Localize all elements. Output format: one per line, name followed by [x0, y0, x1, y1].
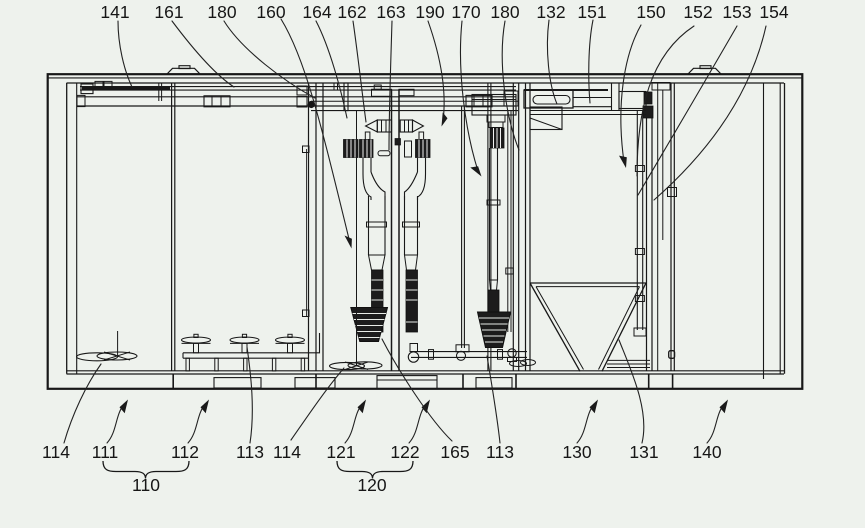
svg-text:150: 150 [636, 2, 665, 22]
svg-text:113: 113 [236, 442, 264, 462]
svg-text:160: 160 [256, 2, 285, 22]
svg-text:165: 165 [440, 442, 469, 462]
svg-text:130: 130 [562, 442, 591, 462]
svg-text:180: 180 [490, 2, 519, 22]
svg-text:152: 152 [683, 2, 712, 22]
svg-text:131: 131 [629, 442, 658, 462]
svg-text:180: 180 [207, 2, 236, 22]
svg-text:112: 112 [171, 442, 199, 462]
svg-text:163: 163 [376, 2, 405, 22]
svg-text:132: 132 [536, 2, 565, 22]
svg-text:162: 162 [337, 2, 366, 22]
svg-text:122: 122 [390, 442, 419, 462]
svg-text:164: 164 [302, 2, 331, 22]
svg-text:114: 114 [273, 442, 301, 462]
svg-text:154: 154 [759, 2, 788, 22]
svg-text:161: 161 [154, 2, 183, 22]
svg-text:153: 153 [722, 2, 751, 22]
svg-text:111: 111 [92, 442, 119, 462]
svg-text:151: 151 [577, 2, 606, 22]
svg-text:113: 113 [486, 442, 514, 462]
svg-text:121: 121 [326, 442, 355, 462]
svg-text:114: 114 [42, 442, 70, 462]
svg-text:141: 141 [100, 2, 129, 22]
svg-text:170: 170 [451, 2, 480, 22]
svg-text:190: 190 [415, 2, 444, 22]
svg-text:140: 140 [692, 442, 721, 462]
